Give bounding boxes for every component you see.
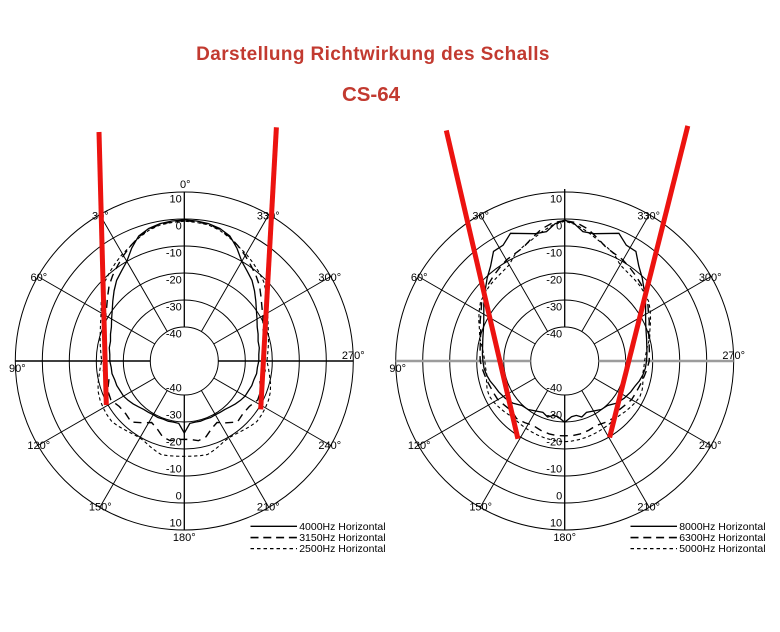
svg-text:2500Hz Horizontal: 2500Hz Horizontal	[299, 543, 385, 555]
svg-text:CS-64: CS-64	[342, 83, 401, 106]
svg-text:-30: -30	[166, 409, 182, 421]
svg-text:0: 0	[176, 490, 182, 502]
svg-text:240°: 240°	[318, 440, 341, 452]
svg-text:60°: 60°	[30, 272, 47, 284]
svg-text:8000Hz Horizontal: 8000Hz Horizontal	[679, 521, 765, 533]
svg-text:5000Hz Horizontal: 5000Hz Horizontal	[679, 543, 765, 555]
svg-text:-30: -30	[546, 301, 562, 313]
svg-text:300°: 300°	[318, 272, 341, 284]
svg-text:90°: 90°	[389, 363, 406, 375]
svg-text:-10: -10	[546, 463, 562, 475]
svg-text:-10: -10	[166, 247, 182, 259]
svg-text:10: 10	[170, 517, 182, 529]
svg-text:150°: 150°	[89, 501, 112, 513]
svg-text:10: 10	[550, 193, 562, 205]
svg-text:-20: -20	[546, 274, 562, 286]
svg-text:10: 10	[550, 517, 562, 529]
svg-text:60°: 60°	[411, 272, 428, 284]
svg-text:-40: -40	[546, 328, 562, 340]
svg-text:-30: -30	[166, 301, 182, 313]
svg-text:-40: -40	[546, 382, 562, 394]
svg-text:-10: -10	[546, 247, 562, 259]
svg-text:4000Hz Horizontal: 4000Hz Horizontal	[299, 521, 385, 533]
svg-text:Darstellung Richtwirkung des S: Darstellung Richtwirkung des Schalls	[196, 44, 550, 65]
svg-text:270°: 270°	[342, 350, 365, 362]
svg-text:300°: 300°	[699, 272, 722, 284]
svg-text:120°: 120°	[27, 440, 50, 452]
svg-text:180°: 180°	[173, 532, 196, 544]
svg-text:-40: -40	[166, 328, 182, 340]
svg-text:0: 0	[556, 490, 562, 502]
svg-text:180°: 180°	[553, 532, 576, 544]
svg-text:210°: 210°	[257, 501, 280, 513]
svg-text:270°: 270°	[722, 350, 745, 362]
svg-text:240°: 240°	[699, 440, 722, 452]
svg-text:0°: 0°	[180, 179, 191, 191]
svg-text:-20: -20	[166, 436, 182, 448]
svg-text:330°: 330°	[637, 210, 660, 222]
svg-text:-20: -20	[546, 436, 562, 448]
svg-text:-40: -40	[166, 382, 182, 394]
svg-text:-10: -10	[166, 463, 182, 475]
svg-text:120°: 120°	[408, 440, 431, 452]
svg-text:-20: -20	[166, 274, 182, 286]
svg-text:30°: 30°	[472, 210, 489, 222]
svg-text:150°: 150°	[469, 501, 492, 513]
svg-text:90°: 90°	[9, 363, 26, 375]
svg-text:210°: 210°	[637, 501, 660, 513]
svg-text:330°: 330°	[257, 210, 280, 222]
svg-text:10: 10	[170, 193, 182, 205]
